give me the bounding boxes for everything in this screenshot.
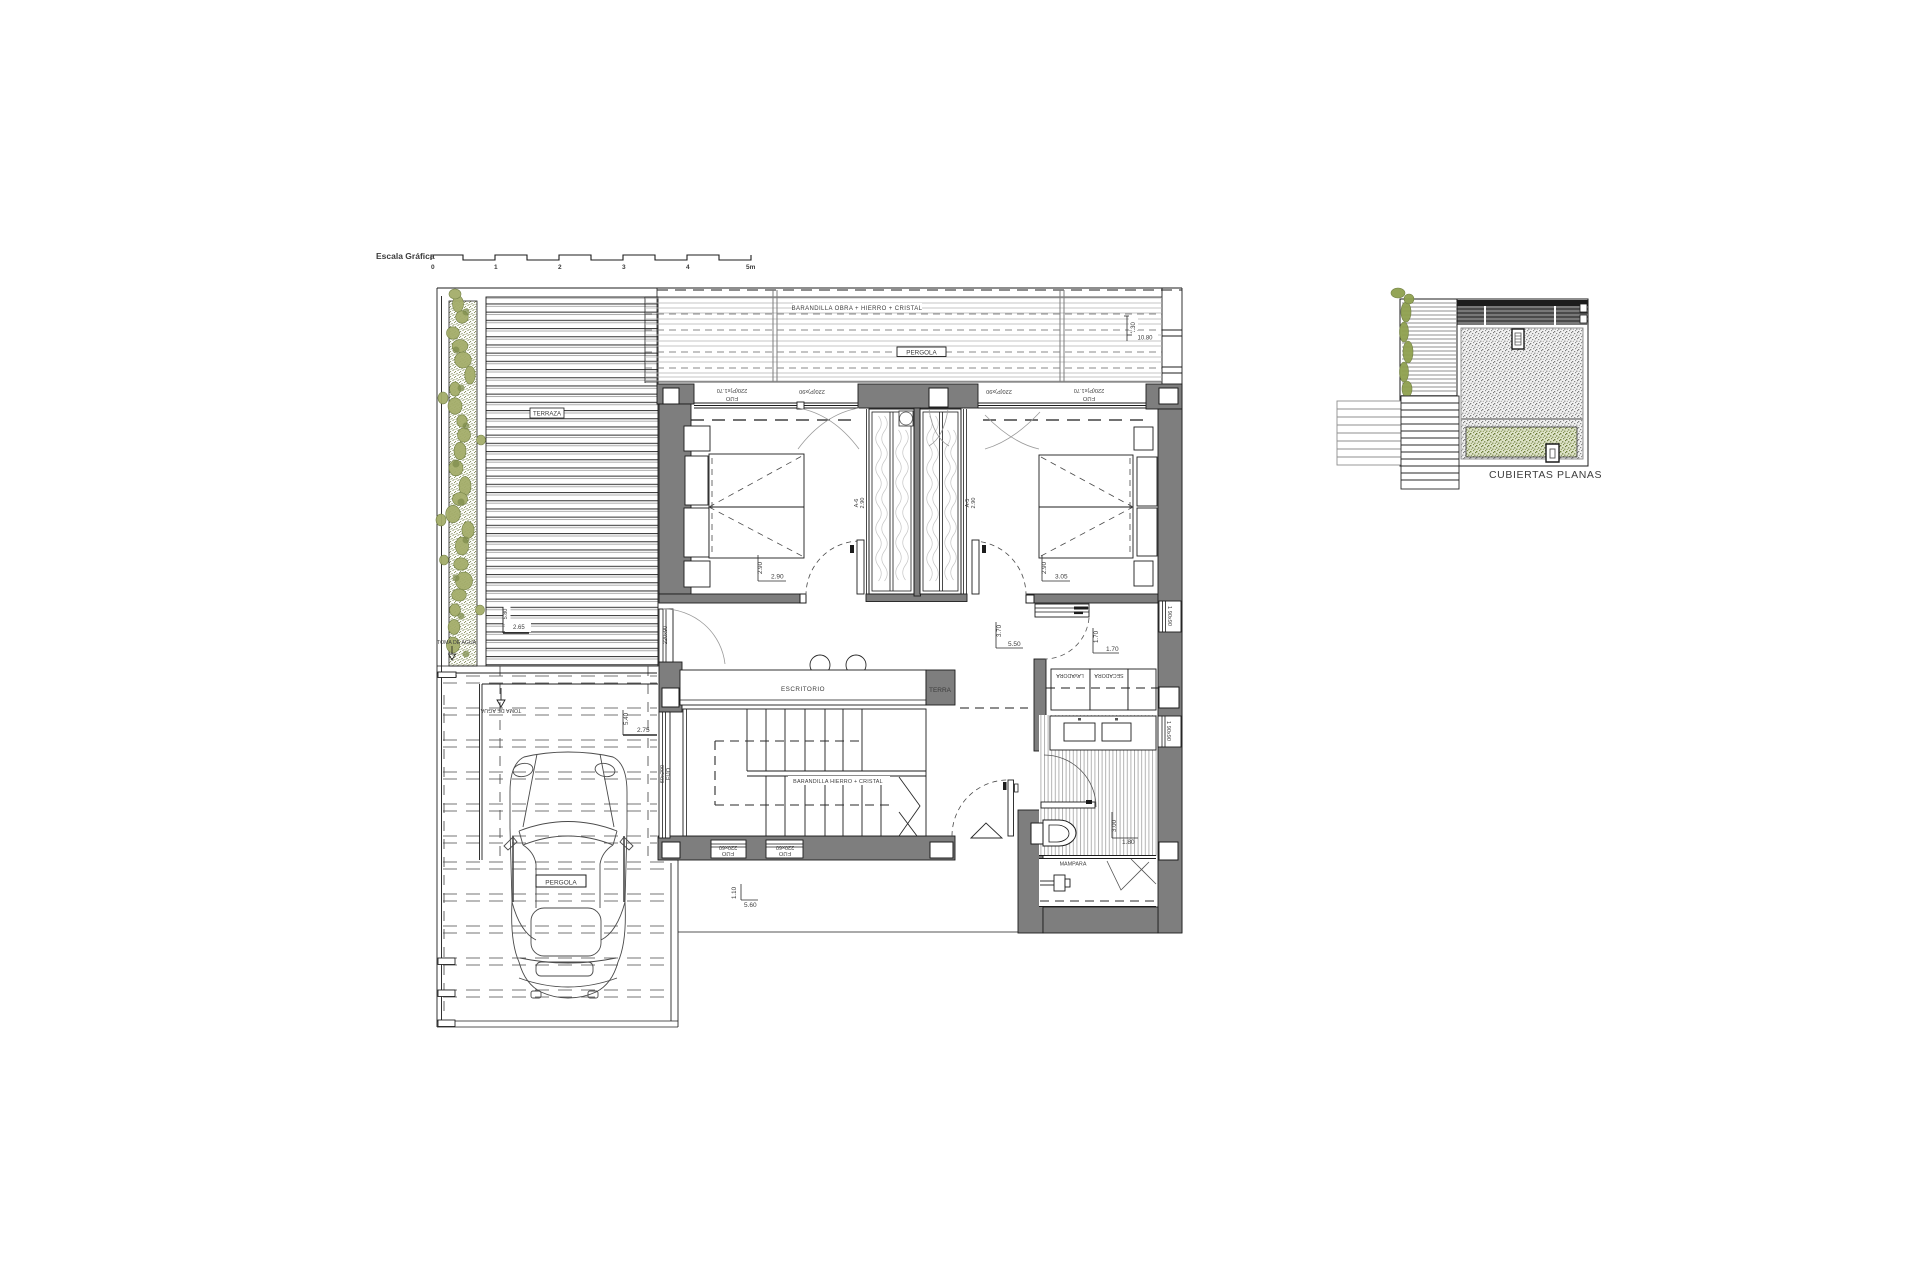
svg-text:ESCRITORIO: ESCRITORIO <box>781 686 825 693</box>
svg-text:220(P)x90: 220(P)x90 <box>986 388 1012 394</box>
svg-text:220(P)x90: 220(P)x90 <box>799 388 825 394</box>
svg-text:5m: 5m <box>746 264 756 271</box>
svg-text:2.90: 2.90 <box>771 574 784 581</box>
svg-text:FIJO: FIJO <box>721 850 734 856</box>
svg-text:PERGOLA: PERGOLA <box>545 880 577 887</box>
svg-text:1 90x90: 1 90x90 <box>1166 606 1172 626</box>
svg-text:2.90: 2.90 <box>757 561 764 574</box>
svg-text:Escala Gráfica: Escala Gráfica <box>376 251 435 261</box>
svg-text:4: 4 <box>686 264 690 271</box>
svg-text:2.90: 2.90 <box>971 498 977 509</box>
svg-text:LAVADORA: LAVADORA <box>1056 672 1084 678</box>
svg-text:5.40: 5.40 <box>623 712 630 725</box>
svg-text:TERRAZA: TERRAZA <box>533 412 561 418</box>
svg-text:2.65: 2.65 <box>513 625 525 631</box>
svg-text:SECADORA: SECADORA <box>1094 672 1124 678</box>
svg-text:1 90x90: 1 90x90 <box>1165 721 1171 741</box>
svg-text:220x90: 220x90 <box>663 626 669 644</box>
svg-text:1.70: 1.70 <box>1106 646 1119 653</box>
svg-text:FIJO: FIJO <box>1082 395 1095 401</box>
svg-text:1.30: 1.30 <box>1131 322 1137 334</box>
svg-text:PERGOLA: PERGOLA <box>906 350 937 357</box>
svg-text:CUBIERTAS PLANAS: CUBIERTAS PLANAS <box>1489 469 1602 481</box>
svg-text:0: 0 <box>431 264 435 271</box>
svg-text:2.75: 2.75 <box>637 727 650 734</box>
svg-text:10.80: 10.80 <box>1137 336 1153 342</box>
svg-text:FIJO: FIJO <box>778 850 791 856</box>
svg-text:3.05: 3.05 <box>1055 574 1068 581</box>
svg-text:FIJO: FIJO <box>666 767 672 780</box>
svg-text:2: 2 <box>558 264 562 271</box>
svg-text:TOMA DE AGUA: TOMA DE AGUA <box>480 707 521 713</box>
svg-text:5.60: 5.60 <box>744 902 757 909</box>
svg-text:BARANDILLA OBRA + HIERRO + CR: BARANDILLA OBRA + HIERRO + CRISTAL <box>792 306 923 312</box>
svg-text:1.70: 1.70 <box>1093 630 1100 643</box>
svg-text:1.10: 1.10 <box>731 886 738 899</box>
svg-text:TOMA DE AGUA: TOMA DE AGUA <box>437 640 477 646</box>
svg-text:FIJO: FIJO <box>725 395 738 401</box>
svg-text:TERRA: TERRA <box>929 687 952 694</box>
svg-text:220(P)x1.70: 220(P)x1.70 <box>1074 387 1104 393</box>
svg-text:1: 1 <box>494 264 498 271</box>
svg-text:3.70: 3.70 <box>996 624 1003 637</box>
svg-text:1.80: 1.80 <box>1122 839 1135 846</box>
svg-text:2.90: 2.90 <box>860 498 866 509</box>
svg-text:3: 3 <box>622 264 626 271</box>
svg-text:5.50: 5.50 <box>1008 641 1021 648</box>
svg-text:220(P)x1.70: 220(P)x1.70 <box>717 387 747 393</box>
svg-text:220x60: 220x60 <box>776 844 794 850</box>
svg-text:2.90: 2.90 <box>1041 561 1048 574</box>
svg-text:5.80: 5.80 <box>503 609 509 620</box>
svg-text:BARANDILLA HIERRO + CRISTAL: BARANDILLA HIERRO + CRISTAL <box>793 779 883 785</box>
svg-text:3.00: 3.00 <box>1111 819 1118 832</box>
svg-text:MAMPARA: MAMPARA <box>1060 862 1087 868</box>
svg-text:220x60: 220x60 <box>719 844 737 850</box>
